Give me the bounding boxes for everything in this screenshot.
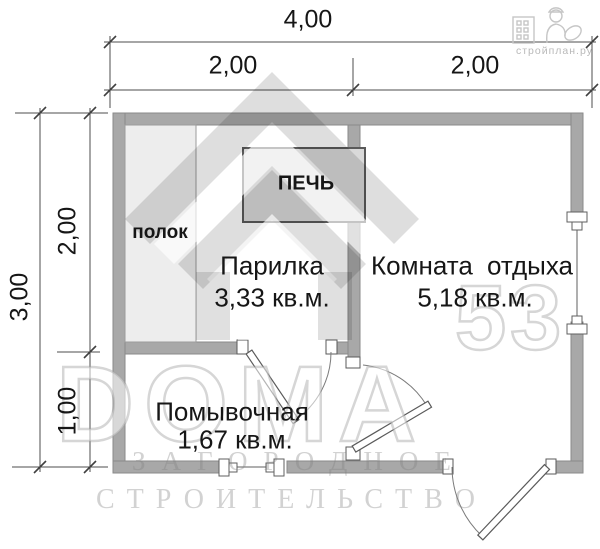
- floor-plan-page: DOMA 53 ЗАГОРОДНОЕ СТРОИТЕЛЬСТВО стройпл…: [0, 0, 600, 549]
- door-leaf: [352, 401, 431, 452]
- door3-jamb-left: [443, 459, 453, 474]
- wall-top: [113, 113, 583, 125]
- wall-bottom-left: [113, 461, 220, 473]
- door-leaf: [478, 465, 550, 540]
- wall-right-upper: [571, 113, 583, 213]
- floor-plan-drawing: [0, 0, 600, 549]
- wall-partition-horizontal-left: [125, 342, 238, 354]
- door-steam-to-washing: [246, 350, 331, 424]
- wall-partition-horizontal-right: [337, 342, 348, 354]
- window-bottom: [219, 459, 284, 476]
- door-leaf: [246, 350, 299, 424]
- dimension-lines: [12, 36, 598, 473]
- door1-jamb-left: [237, 340, 248, 354]
- window-right: [567, 212, 587, 334]
- door-entrance: [452, 465, 550, 540]
- door1-jamb-right: [326, 340, 337, 354]
- bench-area: [125, 125, 196, 342]
- wall-left: [113, 113, 125, 473]
- door-washing-to-rest: [352, 365, 431, 452]
- wall-right-lower: [571, 322, 583, 473]
- wall-bottom-middle: [287, 461, 446, 473]
- door2-jamb-top: [346, 357, 360, 368]
- stove-area: [243, 148, 365, 222]
